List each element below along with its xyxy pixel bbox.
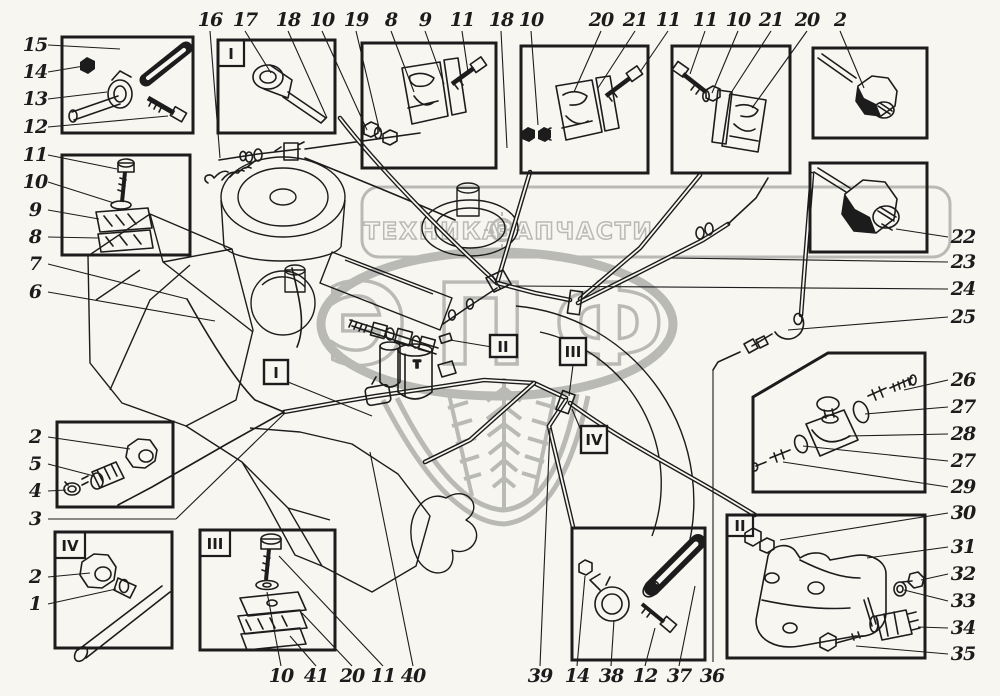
callout-label: 5 (29, 453, 41, 475)
callout-label: 16 (198, 9, 222, 31)
callout-label: 17 (233, 9, 257, 31)
parts-diagram: ТЕХНИКА ЗАПЧАСТИ ЭПФ (0, 0, 1000, 696)
callout-label: 14 (565, 665, 589, 687)
section-tag-iv: IV (585, 431, 603, 449)
callout-label: 35 (951, 643, 975, 665)
callout-label: 41 (304, 665, 328, 687)
callout-label: 39 (528, 665, 552, 687)
callout-label: 8 (29, 226, 41, 248)
callout-label: 10 (269, 665, 293, 687)
callout-label: 37 (667, 665, 691, 687)
callout-label: 6 (29, 281, 41, 303)
inset-box-section-i: I (218, 40, 335, 133)
inset-box-section-iv: IV (55, 532, 172, 664)
section-tag-i: I (273, 364, 279, 382)
callout-label: 21 (623, 9, 647, 31)
inset-roman-label: II (734, 517, 745, 535)
inset-box-section-ii: II (727, 515, 925, 658)
inset-box-block-clamp (62, 155, 190, 255)
callout-label: 12 (633, 665, 657, 687)
inset-box-cap-nut-small (813, 48, 927, 138)
callout-label: 36 (700, 665, 724, 687)
callout-label: 11 (23, 144, 47, 166)
section-tag-ii: II (497, 338, 508, 356)
callout-label: 18 (489, 9, 513, 31)
callout-label: 33 (951, 590, 975, 612)
callout-label: 34 (951, 617, 975, 639)
section-tag-iii: III (565, 343, 582, 361)
callout-label: 20 (340, 665, 364, 687)
callout-label: 9 (419, 9, 431, 31)
callout-label: 24 (951, 278, 975, 300)
inset-roman-label: I (228, 45, 234, 63)
callout-label: 12 (23, 116, 47, 138)
callout-label: 20 (795, 9, 819, 31)
inset-box-section-iii: III (200, 530, 335, 650)
inset-box-hose-clip (572, 528, 705, 660)
inset-box-nut-large (810, 163, 927, 252)
callout-label: 2 (29, 426, 41, 448)
callout-label: 29 (951, 476, 975, 498)
callout-label: 10 (726, 9, 750, 31)
callout-label: 10 (23, 171, 47, 193)
callout-label: 40 (401, 665, 425, 687)
inset-roman-label: III (207, 535, 224, 553)
callout-label: 19 (344, 9, 368, 31)
inset-box-fuel-valve (752, 353, 925, 492)
callout-label: 27 (951, 396, 975, 418)
inset-box-wood-block-front (362, 43, 496, 168)
callout-label: 9 (29, 199, 41, 221)
callout-label: 7 (29, 253, 41, 275)
callout-label: 26 (951, 369, 975, 391)
diagram-artwork: ТЕХНИКА ЗАПЧАСТИ ЭПФ (0, 0, 1000, 696)
callout-label: 2 (29, 566, 41, 588)
callout-label: 10 (310, 9, 334, 31)
callout-label: 18 (276, 9, 300, 31)
callout-label: 11 (371, 665, 395, 687)
callout-label: 2 (834, 9, 846, 31)
callout-label: 11 (656, 9, 680, 31)
callout-label: 25 (951, 306, 975, 328)
callout-label: 23 (951, 251, 975, 273)
callout-label: 11 (450, 9, 474, 31)
watermark-brand-right: ЗАПЧАСТИ (496, 219, 654, 245)
callout-label: 20 (589, 9, 613, 31)
callout-label: 3 (29, 508, 41, 530)
callout-label: 14 (23, 61, 47, 83)
callout-label: 4 (29, 480, 41, 502)
callout-label: 22 (951, 226, 975, 248)
callout-label: 38 (599, 665, 623, 687)
callout-label: 10 (519, 9, 543, 31)
callout-label: 8 (385, 9, 397, 31)
inset-box-clamp-right (672, 46, 790, 173)
callout-label: 32 (951, 563, 975, 585)
callout-label: 13 (23, 88, 47, 110)
filter-mark: Т (413, 358, 421, 371)
callout-label: 15 (23, 34, 47, 56)
callout-label: 11 (693, 9, 717, 31)
callout-label: 27 (951, 450, 975, 472)
inset-roman-label: IV (61, 537, 79, 555)
callout-label: 28 (951, 423, 975, 445)
inset-box-union-washer (57, 422, 173, 507)
inset-box-hose-clamp (62, 37, 193, 133)
callout-label: 31 (951, 536, 975, 558)
inset-box-clamp-left (521, 46, 648, 173)
callout-label: 30 (951, 502, 975, 524)
callout-label: 1 (29, 593, 41, 615)
callout-label: 21 (759, 9, 783, 31)
